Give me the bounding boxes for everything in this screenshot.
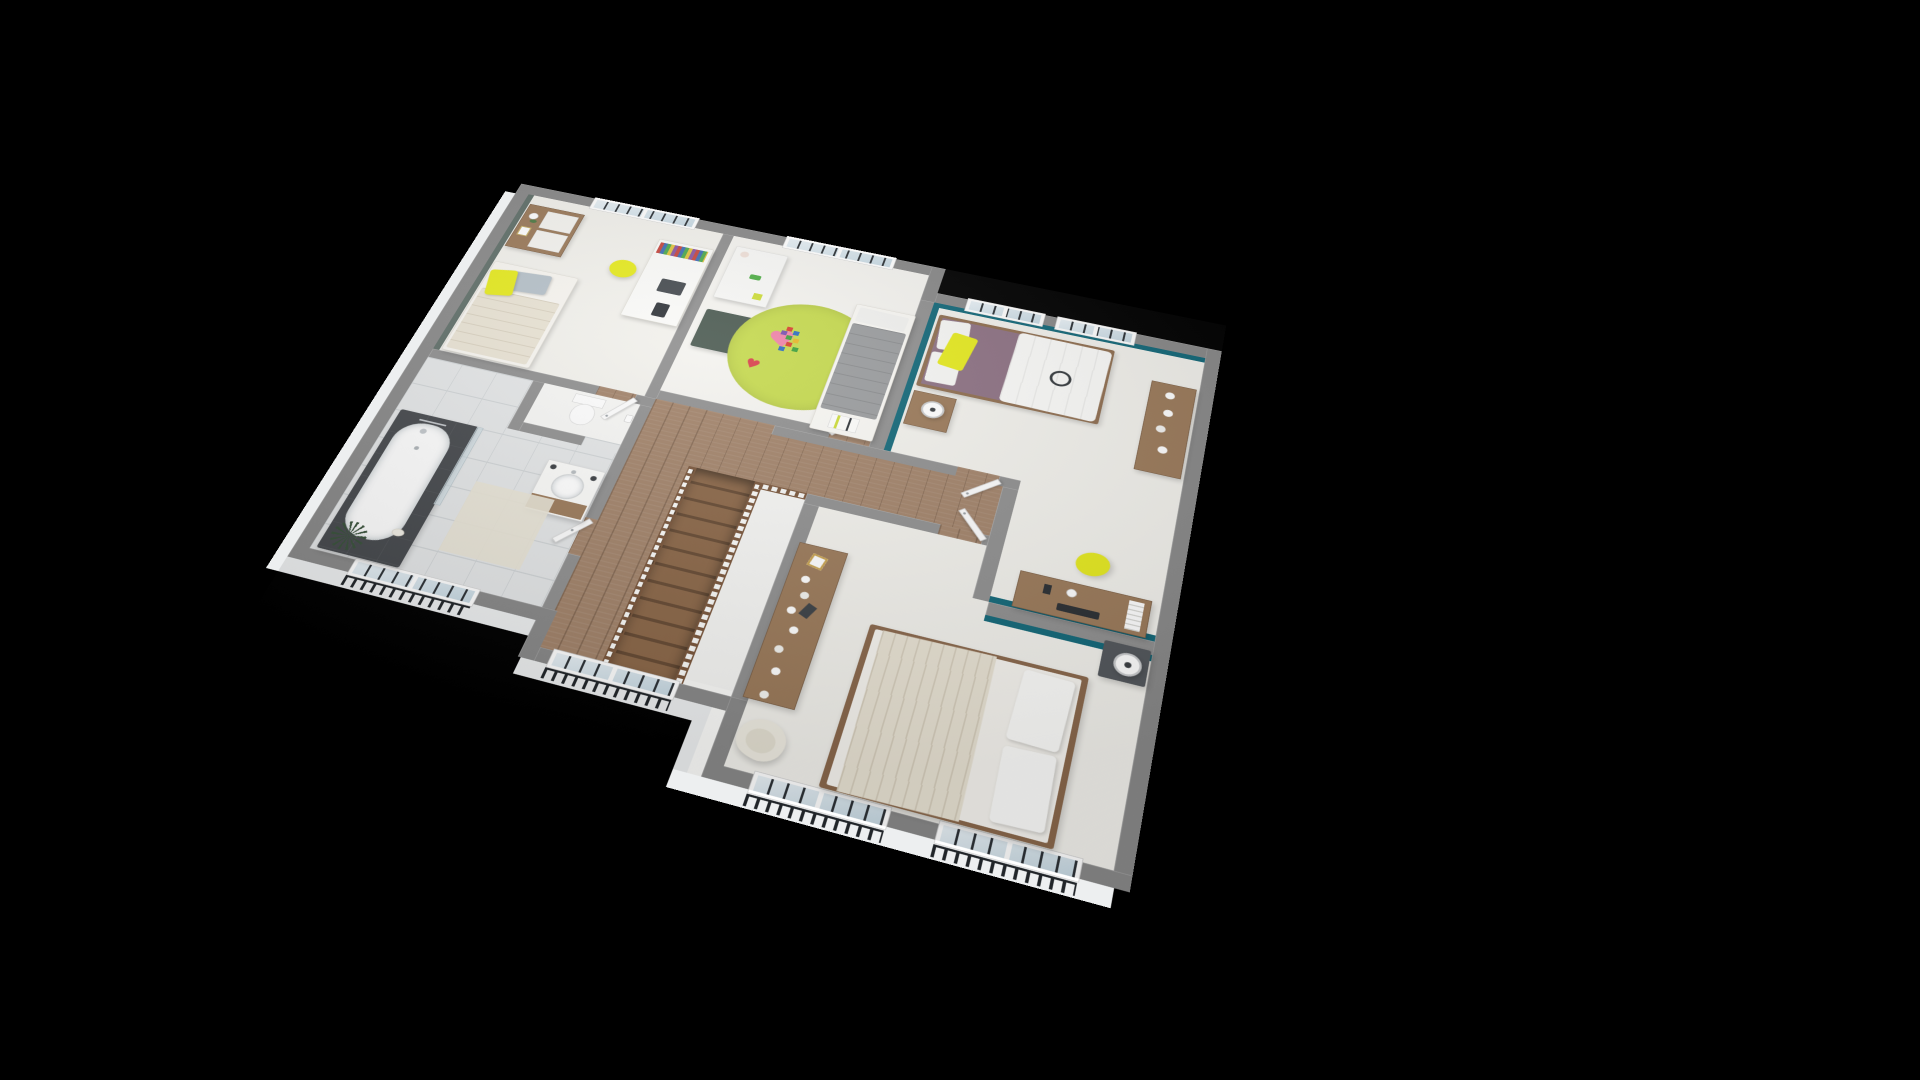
sideboard-plates-vases <box>800 575 811 584</box>
soap-bottle-icon <box>589 476 597 482</box>
sideboard-gold-frame-icon <box>806 553 828 571</box>
green-toy-car-icon <box>749 274 762 281</box>
orchid-leaf-icon <box>529 219 538 223</box>
plush-bunny-icon <box>739 251 750 258</box>
floorplan-scene: ♥ ♥ <box>229 184 1226 893</box>
sideboard-dark-decor <box>798 603 817 619</box>
soap-dish-icon <box>390 527 406 537</box>
soap-bottle-icon <box>549 464 557 470</box>
monitor-icon <box>1056 603 1100 620</box>
vanity-faucet-icon <box>570 470 576 475</box>
armchair-seat <box>740 724 781 759</box>
console-decor-white <box>1165 392 1176 401</box>
heart-icon: ♥ <box>767 328 797 351</box>
screenshot-stage: ♥ ♥ <box>0 0 1920 1080</box>
picture-frame-icon <box>516 226 532 237</box>
laptop-icon <box>656 278 686 296</box>
dresser-drawer <box>527 230 568 253</box>
yellow-pillow <box>484 269 519 296</box>
yellow-toy-box-icon <box>752 293 763 301</box>
heart-icon: ♥ <box>741 356 763 372</box>
desk-phone-icon <box>1042 584 1052 595</box>
desk-books-stack <box>1124 600 1145 632</box>
sports-jersey-icon <box>827 413 860 433</box>
desk-mug-icon <box>1065 588 1077 599</box>
tablet-icon <box>650 302 670 318</box>
